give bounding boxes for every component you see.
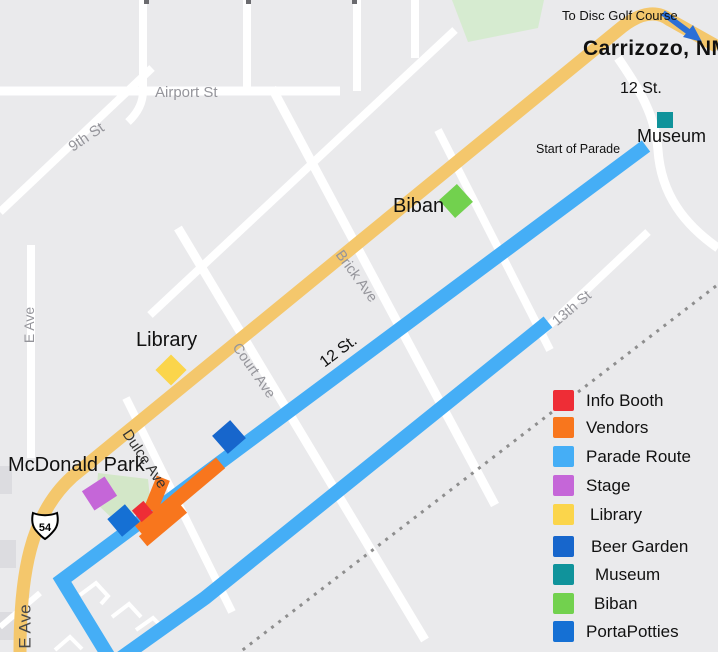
- legend-label: Parade Route: [586, 448, 691, 465]
- e-ave-bottom-label: E Ave: [17, 604, 34, 648]
- to-disc-golf-label: To Disc Golf Course: [562, 9, 678, 22]
- legend-label: PortaPotties: [586, 623, 679, 640]
- parade-route-swatch: [553, 446, 574, 467]
- biban-label: Biban: [393, 196, 444, 216]
- biban-swatch: [553, 593, 574, 614]
- twelfth-st-top-label: 12 St.: [620, 81, 662, 97]
- legend-item-parade-route: Parade Route: [553, 445, 691, 467]
- cutoff-label-fragments: [144, 0, 357, 4]
- legend-item-portapotties: PortaPotties: [553, 620, 679, 642]
- legend-item-library: Library: [553, 503, 642, 525]
- legend-label: Stage: [586, 477, 630, 494]
- mcdonald-park-label: McDonald Park: [8, 455, 145, 475]
- legend-label: Museum: [595, 566, 660, 583]
- park-area-northeast: [452, 0, 544, 42]
- us54-shield-number: 54: [39, 522, 52, 534]
- legend-label: Beer Garden: [591, 538, 688, 555]
- museum-label: Museum: [637, 127, 706, 145]
- info-booth-swatch: [553, 390, 574, 411]
- library-label: Library: [136, 330, 197, 350]
- legend-label: Info Booth: [586, 392, 664, 409]
- stage-swatch: [553, 475, 574, 496]
- legend-item-biban: Biban: [553, 592, 637, 614]
- legend-item-vendors: Vendors: [553, 416, 648, 438]
- vendors-swatch: [553, 417, 574, 438]
- start-of-parade-label: Start of Parade: [536, 143, 620, 156]
- legend-item-info-booth: Info Booth: [553, 389, 664, 411]
- airport-st-label: Airport St: [155, 85, 218, 100]
- carrizozo-parade-map: 54 To Disc Golf Course Carrizozo, NM 12 …: [0, 0, 718, 652]
- legend-item-stage: Stage: [553, 474, 630, 496]
- legend-item-beer-garden: Beer Garden: [553, 535, 688, 557]
- library-swatch: [553, 504, 574, 525]
- legend-item-museum: Museum: [553, 563, 660, 585]
- tenth-st-road: [150, 30, 455, 315]
- e-ave-top-label: E Ave: [22, 307, 36, 343]
- legend-label: Library: [590, 506, 642, 523]
- beer-garden-swatch: [553, 536, 574, 557]
- city-title: Carrizozo, NM: [583, 38, 718, 59]
- portapotties-swatch: [553, 621, 574, 642]
- legend-label: Biban: [594, 595, 637, 612]
- vertical-road-1: [128, 0, 143, 122]
- legend-label: Vendors: [586, 419, 648, 436]
- museum-swatch: [553, 564, 574, 585]
